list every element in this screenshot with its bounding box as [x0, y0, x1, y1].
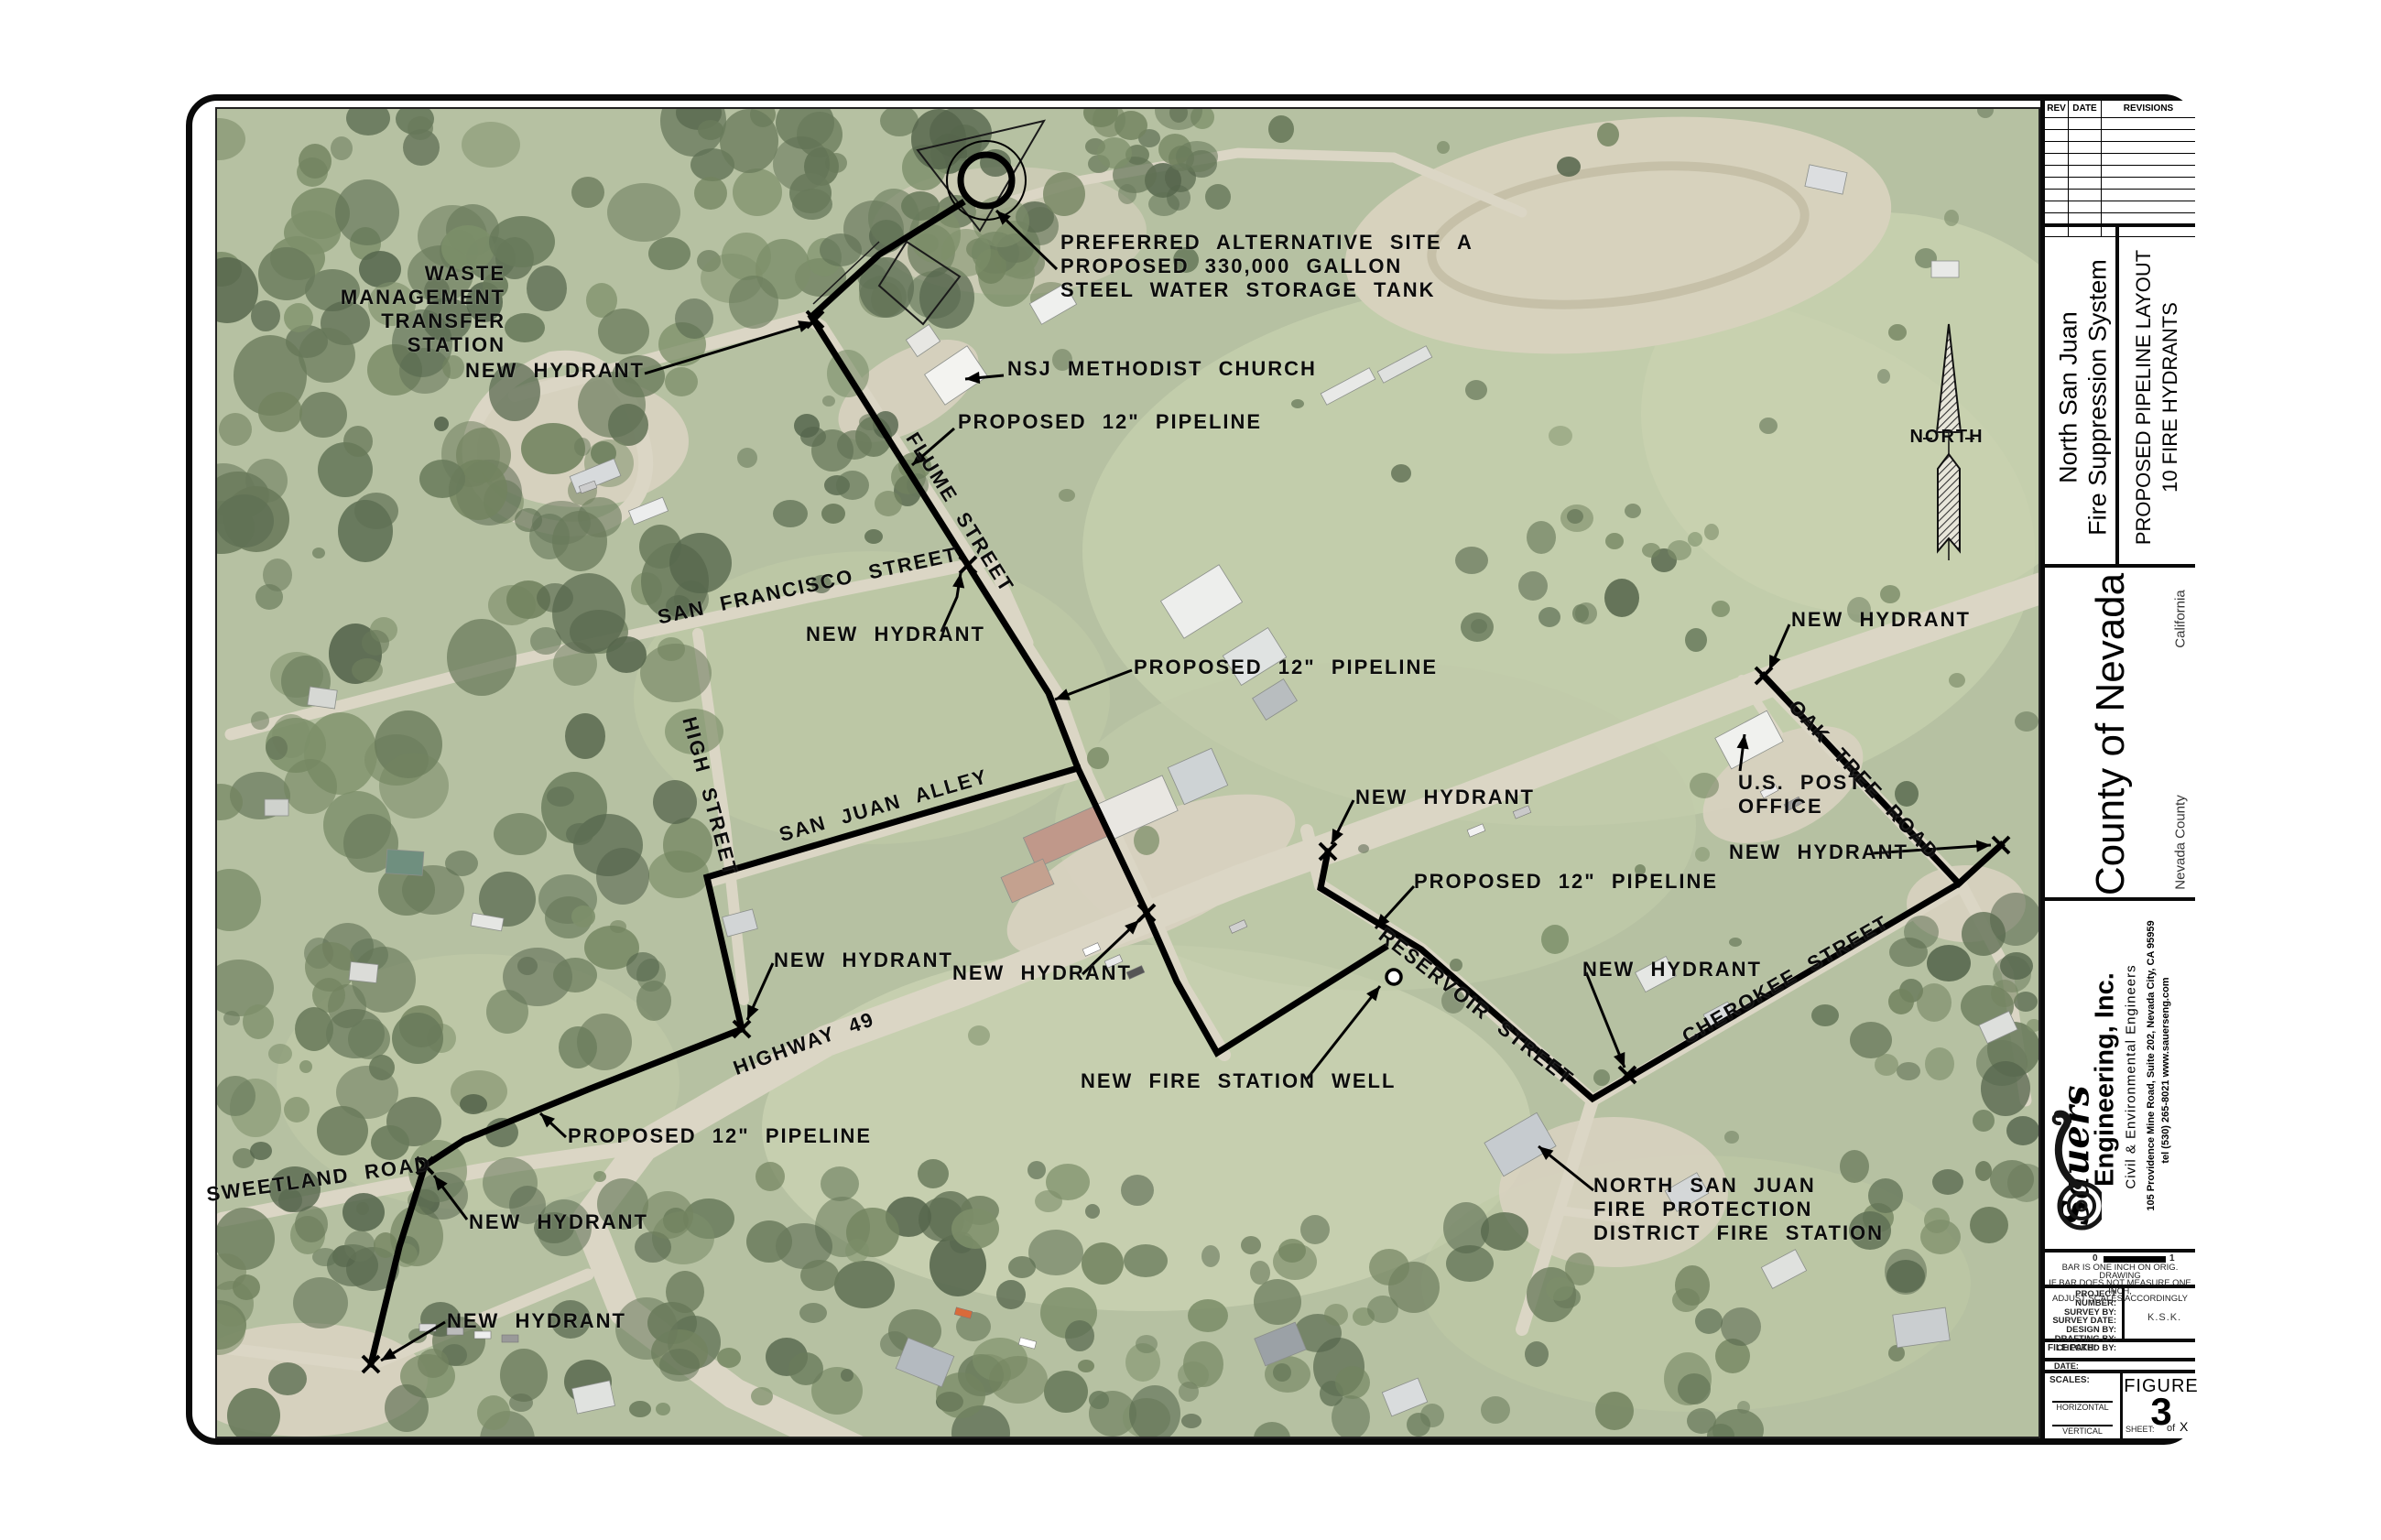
county-section: County of Nevada California Nevada Count…: [2045, 568, 2195, 901]
scale-bar: [2104, 1256, 2166, 1263]
aerial-map-panel: [215, 107, 2040, 1438]
revisions-header-revisions: REVISIONS: [2102, 101, 2195, 117]
project-info-label: PROJECT NUMBER:: [2045, 1290, 2120, 1308]
project-system-line2: Fire Suppression System: [2084, 259, 2113, 536]
scale-bar-section: 0 1 BAR IS ONE INCH ON ORIG. DRAWING IF …: [2045, 1253, 2195, 1288]
aerial-map-svg: [217, 109, 2040, 1438]
sheet-label: SHEET:: [2126, 1425, 2155, 1434]
project-system-line1: North San Juan: [2055, 311, 2083, 483]
project-info-section: PROJECT NUMBER:SURVEY BY:SURVEY DATE:DES…: [2045, 1288, 2195, 1342]
revisions-empty-row: [2045, 213, 2195, 225]
horizontal-label: HORIZONTAL: [2045, 1403, 2120, 1412]
revisions-empty-row: [2045, 190, 2195, 201]
sheet-of: of: [2167, 1423, 2175, 1434]
well-symbol: [1386, 970, 1401, 984]
title-block: REVDATEREVISIONS North San Juan Fire Sup…: [2040, 101, 2195, 1438]
scales-label: SCALES:: [2049, 1375, 2090, 1385]
sauers-swan-logo: [2047, 1107, 2102, 1244]
revisions-empty-row: [2045, 178, 2195, 190]
date-section: DATE:: [2045, 1361, 2195, 1373]
drawing-title-line2: 10 FIRE HYDRANTS: [2158, 302, 2182, 493]
project-title-section: North San Juan Fire Suppression System P…: [2045, 227, 2195, 568]
date-label: DATE:: [2054, 1361, 2079, 1371]
scales-box: SCALES: HORIZONTAL VERTICAL: [2045, 1373, 2123, 1438]
drawing-sheet: WASTE MANAGEMENT TRANSFER STATIONNEW HYD…: [0, 0, 2381, 1540]
file-path-section: FILE PATH:: [2045, 1342, 2195, 1361]
revisions-header-date: DATE: [2069, 101, 2102, 117]
revisions-empty-row: [2045, 201, 2195, 213]
divider: [2122, 1288, 2125, 1339]
file-path-label: FILE PATH:: [2048, 1343, 2097, 1353]
revisions-header-rev: REV: [2045, 101, 2069, 117]
drawing-title-line1: PROPOSED PIPELINE LAYOUT: [2132, 250, 2156, 545]
divider: [2115, 227, 2119, 564]
scales-figure-section: SCALES: HORIZONTAL VERTICAL FIGURE 3 SHE…: [2045, 1373, 2195, 1438]
figure-box: FIGURE 3 SHEET: of X: [2123, 1373, 2200, 1438]
checked-by-value: K.S.K.: [2147, 1312, 2181, 1323]
firm-address: 105 Providence Mine Road, Suite 202, Nev…: [2146, 920, 2157, 1210]
revisions-empty-row: [2045, 154, 2195, 166]
revisions-empty-row: [2045, 142, 2195, 154]
revisions-table: REVDATEREVISIONS: [2045, 101, 2195, 227]
sheet-total: X: [2180, 1419, 2188, 1434]
county-name: County of Nevada: [2088, 573, 2134, 895]
firm-contact: tel (530) 265-8021 www.sauerseng.com: [2160, 977, 2171, 1163]
state-label: California: [2173, 590, 2189, 647]
firm-tagline: Civil & Environmental Engineers: [2124, 964, 2139, 1188]
revisions-empty-row: [2045, 166, 2195, 178]
revisions-header-row: REVDATEREVISIONS: [2045, 101, 2195, 118]
county-label: Nevada County: [2173, 795, 2189, 889]
engineer-section: Sauers Engineering, Inc. Civil & Environ…: [2045, 901, 2195, 1253]
revisions-empty-row: [2045, 118, 2195, 130]
revisions-empty-row: [2045, 130, 2195, 142]
vertical-label: VERTICAL: [2045, 1426, 2120, 1436]
